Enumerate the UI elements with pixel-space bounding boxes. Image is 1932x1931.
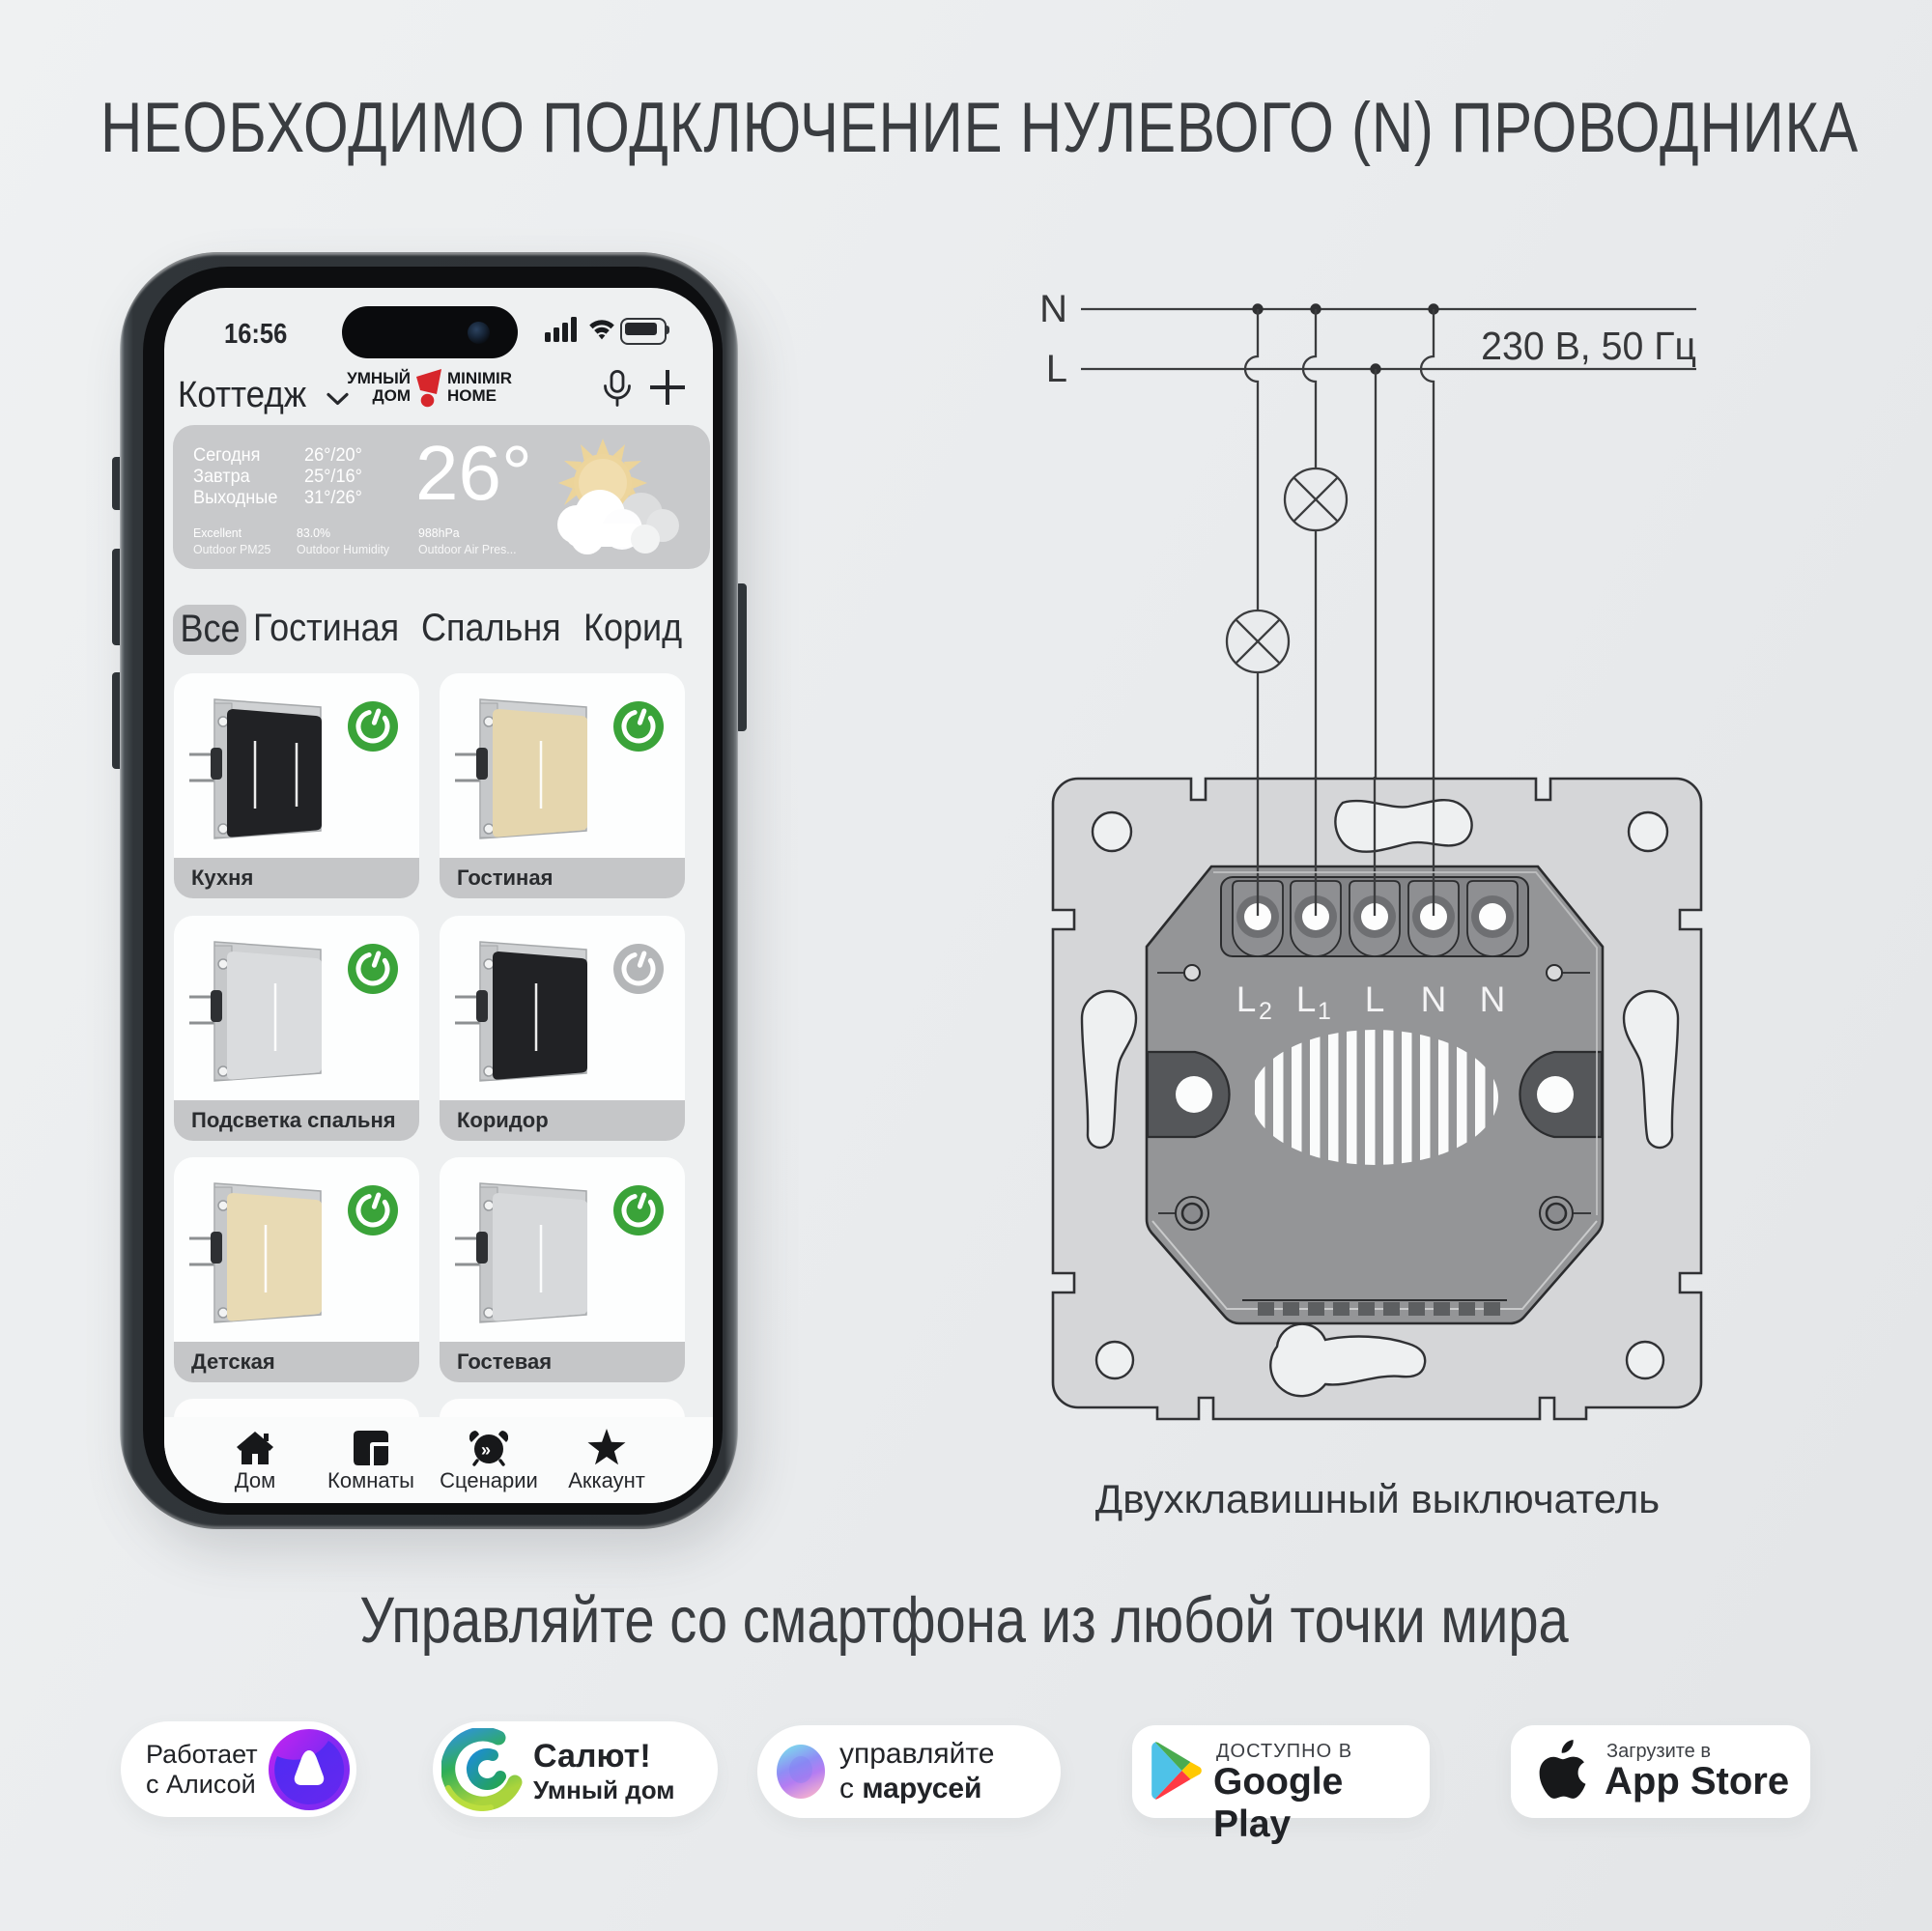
svg-text:N: N — [1039, 288, 1067, 330]
svg-text:2: 2 — [1259, 998, 1272, 1025]
svg-text:L: L — [1365, 980, 1385, 1019]
svg-text:L: L — [1046, 348, 1067, 390]
svg-text:L: L — [1236, 980, 1257, 1019]
svg-text:L: L — [1296, 980, 1317, 1019]
svg-text:»: » — [481, 1440, 491, 1460]
svg-text:N: N — [1421, 980, 1447, 1019]
svg-text:1: 1 — [1318, 998, 1331, 1025]
svg-text:N: N — [1480, 980, 1506, 1019]
